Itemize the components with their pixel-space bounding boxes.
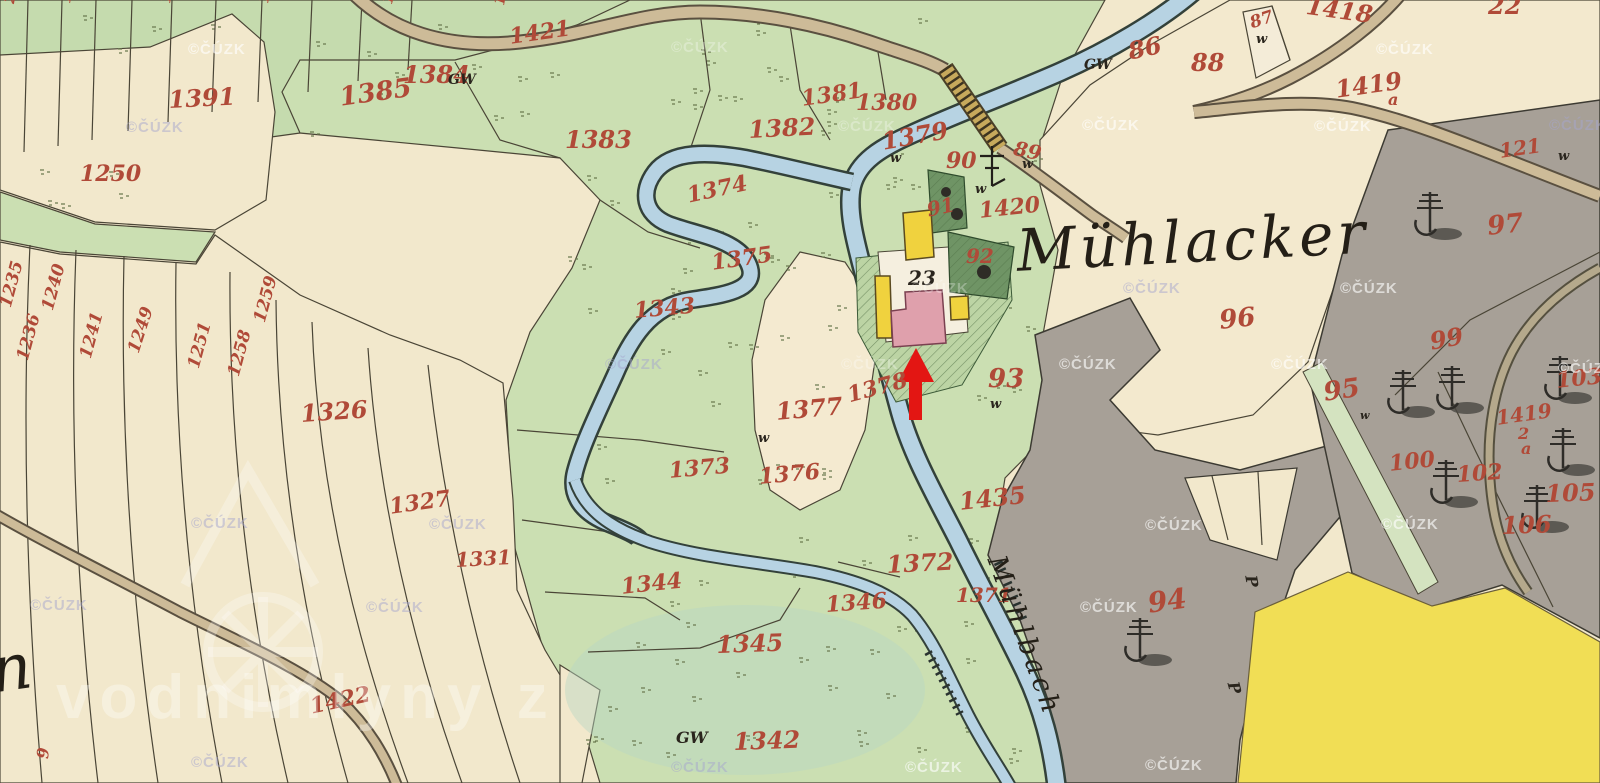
wet-meadow-wash [565, 605, 925, 775]
building-yellow-2 [875, 276, 892, 338]
building-yellow-3 [950, 296, 969, 320]
building-yellow-1 [903, 210, 934, 260]
map-drawing [0, 0, 1600, 783]
historic-cadastral-map[interactable]: 1421138413851391125013831382138113801379… [0, 0, 1600, 783]
